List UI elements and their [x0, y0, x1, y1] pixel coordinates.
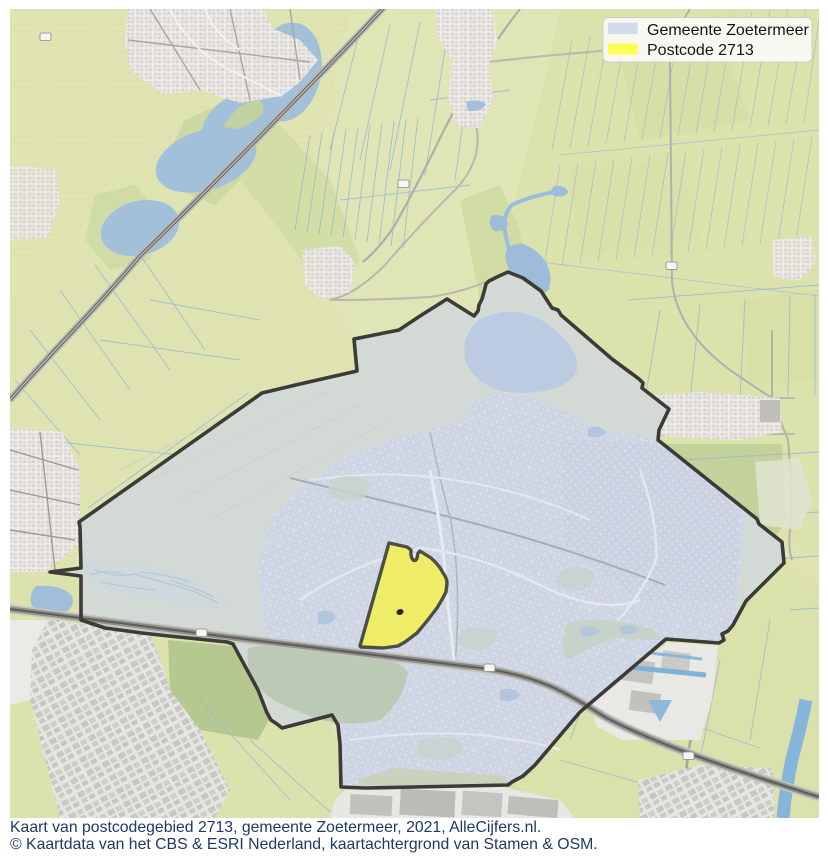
svg-text:Gemeente Zoetermeer: Gemeente Zoetermeer — [647, 22, 810, 39]
svg-text:Postcode 2713: Postcode 2713 — [647, 42, 754, 59]
svg-text:© Kaartdata van het CBS & ESRI: © Kaartdata van het CBS & ESRI Nederland… — [10, 836, 598, 853]
svg-text:Kaart van postcodegebied 2713,: Kaart van postcodegebied 2713, gemeente … — [10, 819, 541, 836]
